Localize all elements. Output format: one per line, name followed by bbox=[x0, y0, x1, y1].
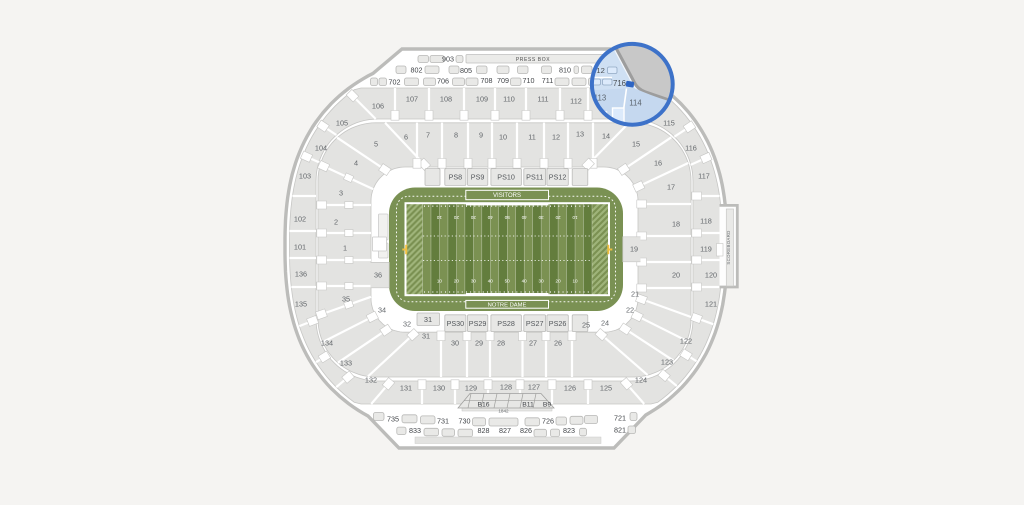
svg-text:40: 40 bbox=[522, 279, 528, 284]
svg-text:PS26: PS26 bbox=[549, 319, 567, 328]
svg-text:10: 10 bbox=[437, 279, 443, 284]
svg-text:30: 30 bbox=[471, 279, 477, 284]
svg-text:PS12: PS12 bbox=[549, 173, 567, 182]
svg-text:PS27: PS27 bbox=[526, 319, 544, 328]
svg-text:827: 827 bbox=[499, 426, 511, 435]
svg-text:VISITORS: VISITORS bbox=[493, 193, 521, 199]
svg-text:706: 706 bbox=[437, 77, 449, 86]
svg-text:810: 810 bbox=[559, 65, 571, 74]
svg-text:20: 20 bbox=[454, 279, 460, 284]
svg-text:123: 123 bbox=[661, 358, 673, 367]
svg-text:730: 730 bbox=[459, 417, 471, 426]
svg-text:28: 28 bbox=[497, 339, 505, 348]
svg-text:40: 40 bbox=[521, 215, 527, 220]
svg-text:16: 16 bbox=[654, 159, 662, 168]
svg-text:B9: B9 bbox=[543, 402, 552, 409]
svg-text:22: 22 bbox=[626, 306, 634, 315]
svg-text:29: 29 bbox=[475, 339, 483, 348]
svg-text:50: 50 bbox=[505, 279, 511, 284]
svg-text:105: 105 bbox=[336, 119, 348, 128]
svg-text:PS8: PS8 bbox=[449, 173, 463, 182]
svg-text:128: 128 bbox=[500, 383, 512, 392]
svg-text:40: 40 bbox=[487, 215, 493, 220]
svg-text:PS28: PS28 bbox=[497, 319, 515, 328]
svg-text:136: 136 bbox=[295, 270, 307, 279]
svg-text:903: 903 bbox=[442, 55, 454, 64]
svg-text:132: 132 bbox=[365, 376, 377, 385]
svg-text:112: 112 bbox=[570, 97, 582, 106]
svg-text:802: 802 bbox=[411, 65, 423, 74]
svg-text:10: 10 bbox=[499, 133, 507, 142]
svg-text:135: 135 bbox=[295, 300, 307, 309]
svg-text:31: 31 bbox=[422, 332, 430, 341]
svg-text:32: 32 bbox=[403, 320, 411, 329]
svg-text:108: 108 bbox=[440, 95, 452, 104]
svg-text:127: 127 bbox=[528, 383, 540, 392]
svg-text:125: 125 bbox=[600, 384, 612, 393]
svg-text:111: 111 bbox=[537, 95, 548, 104]
svg-text:B11: B11 bbox=[522, 402, 534, 409]
svg-text:726: 726 bbox=[542, 417, 554, 426]
svg-text:133: 133 bbox=[340, 359, 352, 368]
svg-text:PS29: PS29 bbox=[469, 319, 487, 328]
svg-text:118: 118 bbox=[700, 217, 712, 226]
svg-text:131: 131 bbox=[400, 384, 412, 393]
svg-text:1: 1 bbox=[343, 244, 347, 253]
svg-text:7: 7 bbox=[426, 131, 430, 140]
svg-text:121: 121 bbox=[705, 300, 717, 309]
svg-text:35: 35 bbox=[342, 295, 350, 304]
svg-text:9: 9 bbox=[479, 131, 483, 140]
svg-text:833: 833 bbox=[409, 426, 421, 435]
svg-text:20: 20 bbox=[555, 215, 561, 220]
svg-text:126: 126 bbox=[564, 384, 576, 393]
svg-text:130: 130 bbox=[433, 384, 445, 393]
svg-text:B16: B16 bbox=[477, 402, 489, 409]
svg-text:805: 805 bbox=[460, 66, 472, 75]
svg-text:24: 24 bbox=[601, 319, 609, 328]
svg-text:120: 120 bbox=[705, 271, 717, 280]
svg-text:20: 20 bbox=[556, 279, 562, 284]
svg-text:11: 11 bbox=[528, 133, 536, 142]
svg-text:13: 13 bbox=[576, 130, 584, 139]
svg-text:PRESS BOX: PRESS BOX bbox=[516, 57, 550, 63]
svg-text:122: 122 bbox=[680, 337, 692, 346]
svg-text:30: 30 bbox=[451, 339, 459, 348]
svg-text:124: 124 bbox=[635, 376, 647, 385]
svg-text:110: 110 bbox=[503, 95, 515, 104]
svg-text:4: 4 bbox=[354, 159, 358, 168]
svg-text:731: 731 bbox=[437, 417, 449, 426]
svg-text:107: 107 bbox=[406, 95, 418, 104]
svg-text:PS11: PS11 bbox=[526, 173, 543, 182]
svg-text:15: 15 bbox=[632, 140, 640, 149]
svg-text:PS30: PS30 bbox=[447, 319, 465, 328]
svg-text:10: 10 bbox=[572, 279, 578, 284]
svg-text:PS10: PS10 bbox=[497, 173, 515, 182]
svg-text:709: 709 bbox=[497, 76, 509, 85]
svg-text:828: 828 bbox=[478, 426, 490, 435]
svg-text:103: 103 bbox=[299, 172, 311, 181]
svg-text:129: 129 bbox=[465, 384, 477, 393]
svg-text:20: 20 bbox=[453, 215, 459, 220]
svg-text:821: 821 bbox=[614, 426, 626, 435]
svg-text:34: 34 bbox=[378, 306, 386, 315]
svg-text:716: 716 bbox=[613, 79, 626, 88]
svg-text:721: 721 bbox=[614, 414, 626, 423]
svg-text:SCOREBOARD: SCOREBOARD bbox=[726, 230, 731, 264]
svg-text:NOTRE DAME: NOTRE DAME bbox=[488, 303, 527, 309]
svg-text:711: 711 bbox=[542, 76, 553, 85]
svg-text:109: 109 bbox=[476, 95, 488, 104]
svg-text:30: 30 bbox=[538, 215, 544, 220]
svg-text:104: 104 bbox=[315, 144, 327, 153]
svg-text:30: 30 bbox=[470, 215, 476, 220]
svg-text:8: 8 bbox=[454, 131, 458, 140]
svg-text:10: 10 bbox=[436, 215, 442, 220]
svg-text:36: 36 bbox=[374, 271, 382, 280]
svg-text:21: 21 bbox=[631, 290, 639, 299]
svg-text:1842: 1842 bbox=[498, 408, 509, 413]
svg-text:17: 17 bbox=[667, 183, 675, 192]
svg-text:27: 27 bbox=[529, 339, 537, 348]
svg-text:101: 101 bbox=[294, 243, 306, 252]
svg-text:708: 708 bbox=[481, 76, 493, 85]
svg-text:18: 18 bbox=[672, 220, 680, 229]
svg-text:50: 50 bbox=[504, 215, 510, 220]
svg-text:PS9: PS9 bbox=[471, 173, 485, 182]
svg-text:14: 14 bbox=[602, 132, 610, 141]
svg-text:826: 826 bbox=[520, 426, 532, 435]
svg-text:31: 31 bbox=[424, 315, 432, 324]
svg-text:710: 710 bbox=[523, 76, 535, 85]
svg-text:114: 114 bbox=[629, 98, 642, 107]
svg-text:115: 115 bbox=[663, 119, 675, 128]
svg-text:106: 106 bbox=[372, 102, 384, 111]
svg-text:2: 2 bbox=[334, 218, 338, 227]
svg-text:19: 19 bbox=[630, 245, 638, 254]
svg-text:117: 117 bbox=[698, 172, 710, 181]
svg-text:735: 735 bbox=[387, 415, 399, 424]
svg-text:20: 20 bbox=[672, 271, 680, 280]
svg-text:702: 702 bbox=[389, 78, 401, 87]
svg-text:26: 26 bbox=[554, 339, 562, 348]
svg-text:5: 5 bbox=[374, 140, 378, 149]
svg-text:823: 823 bbox=[563, 426, 575, 435]
svg-text:6: 6 bbox=[404, 133, 408, 142]
svg-text:12: 12 bbox=[552, 133, 560, 142]
svg-text:10: 10 bbox=[572, 215, 578, 220]
svg-text:30: 30 bbox=[539, 279, 545, 284]
svg-text:102: 102 bbox=[294, 215, 306, 224]
svg-text:3: 3 bbox=[339, 189, 343, 198]
svg-text:119: 119 bbox=[700, 245, 712, 254]
svg-text:25: 25 bbox=[582, 321, 590, 330]
svg-text:134: 134 bbox=[321, 339, 333, 348]
svg-text:40: 40 bbox=[488, 279, 494, 284]
svg-text:116: 116 bbox=[685, 144, 697, 153]
